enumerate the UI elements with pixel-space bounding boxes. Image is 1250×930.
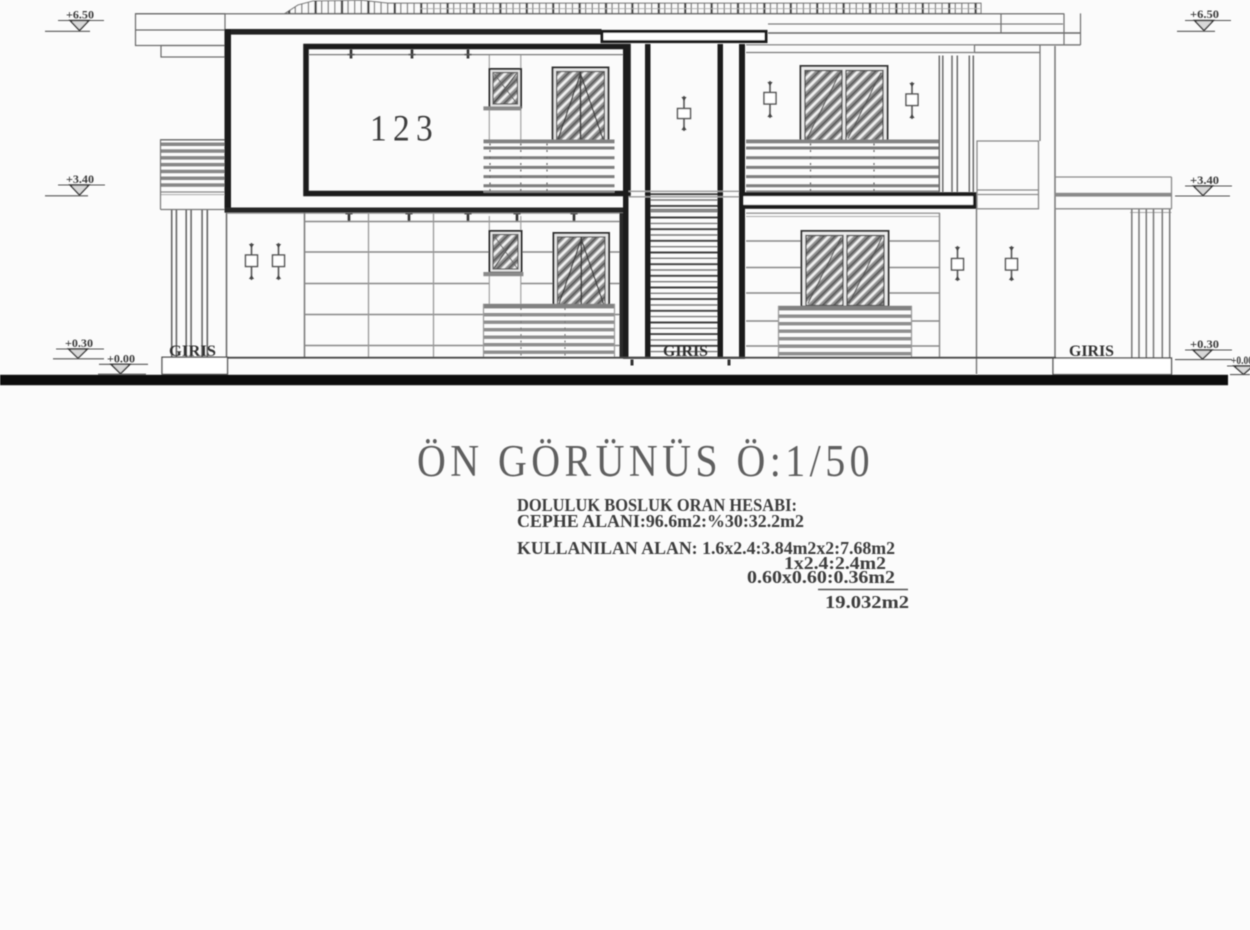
svg-text:+3.40: +3.40 <box>66 174 94 186</box>
svg-text:CEPHE ALANI:96.6m2:%30:32.2m2: CEPHE ALANI:96.6m2:%30:32.2m2 <box>517 511 804 531</box>
svg-text:+6.50: +6.50 <box>66 10 94 22</box>
svg-text:+0.30: +0.30 <box>1190 339 1219 351</box>
svg-text:19.032m2: 19.032m2 <box>825 592 909 612</box>
svg-text:+6.50: +6.50 <box>1190 9 1219 21</box>
svg-text:123: 123 <box>370 109 439 150</box>
svg-text:+0.00: +0.00 <box>1231 355 1250 367</box>
svg-text:+0.30: +0.30 <box>65 338 93 350</box>
svg-text:ÖN GÖRÜNÜS Ö:1/50: ÖN GÖRÜNÜS Ö:1/50 <box>417 436 874 486</box>
svg-text:+3.40: +3.40 <box>1190 175 1219 187</box>
svg-text:0.60x0.60:0.36m2: 0.60x0.60:0.36m2 <box>747 567 895 587</box>
